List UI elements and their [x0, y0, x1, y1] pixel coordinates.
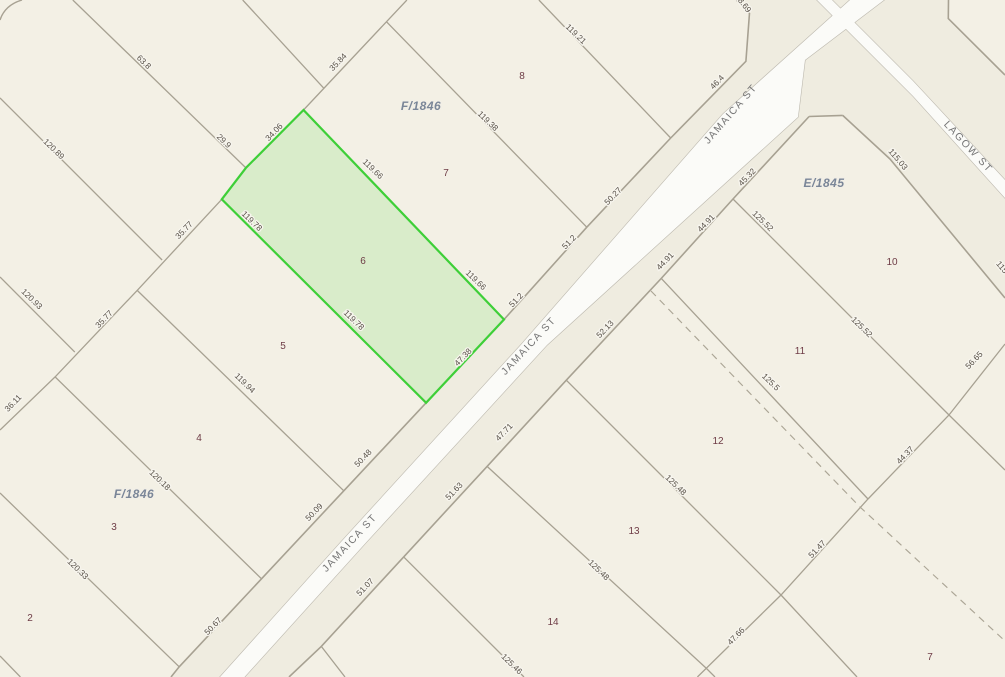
svg-text:10: 10	[886, 257, 898, 268]
svg-text:7: 7	[443, 168, 449, 179]
svg-text:4: 4	[196, 433, 202, 444]
svg-text:8: 8	[519, 71, 525, 82]
svg-text:2: 2	[27, 613, 33, 624]
svg-text:7: 7	[927, 652, 933, 663]
svg-text:12: 12	[712, 436, 724, 447]
svg-text:E/1845: E/1845	[803, 176, 844, 190]
svg-text:5: 5	[280, 341, 286, 352]
svg-text:14: 14	[547, 617, 559, 628]
svg-text:13: 13	[628, 526, 640, 537]
svg-text:11: 11	[795, 346, 806, 357]
svg-text:F/1846: F/1846	[401, 99, 441, 113]
svg-text:3: 3	[111, 522, 117, 533]
svg-text:6: 6	[360, 256, 366, 267]
svg-text:F/1846: F/1846	[114, 487, 154, 501]
